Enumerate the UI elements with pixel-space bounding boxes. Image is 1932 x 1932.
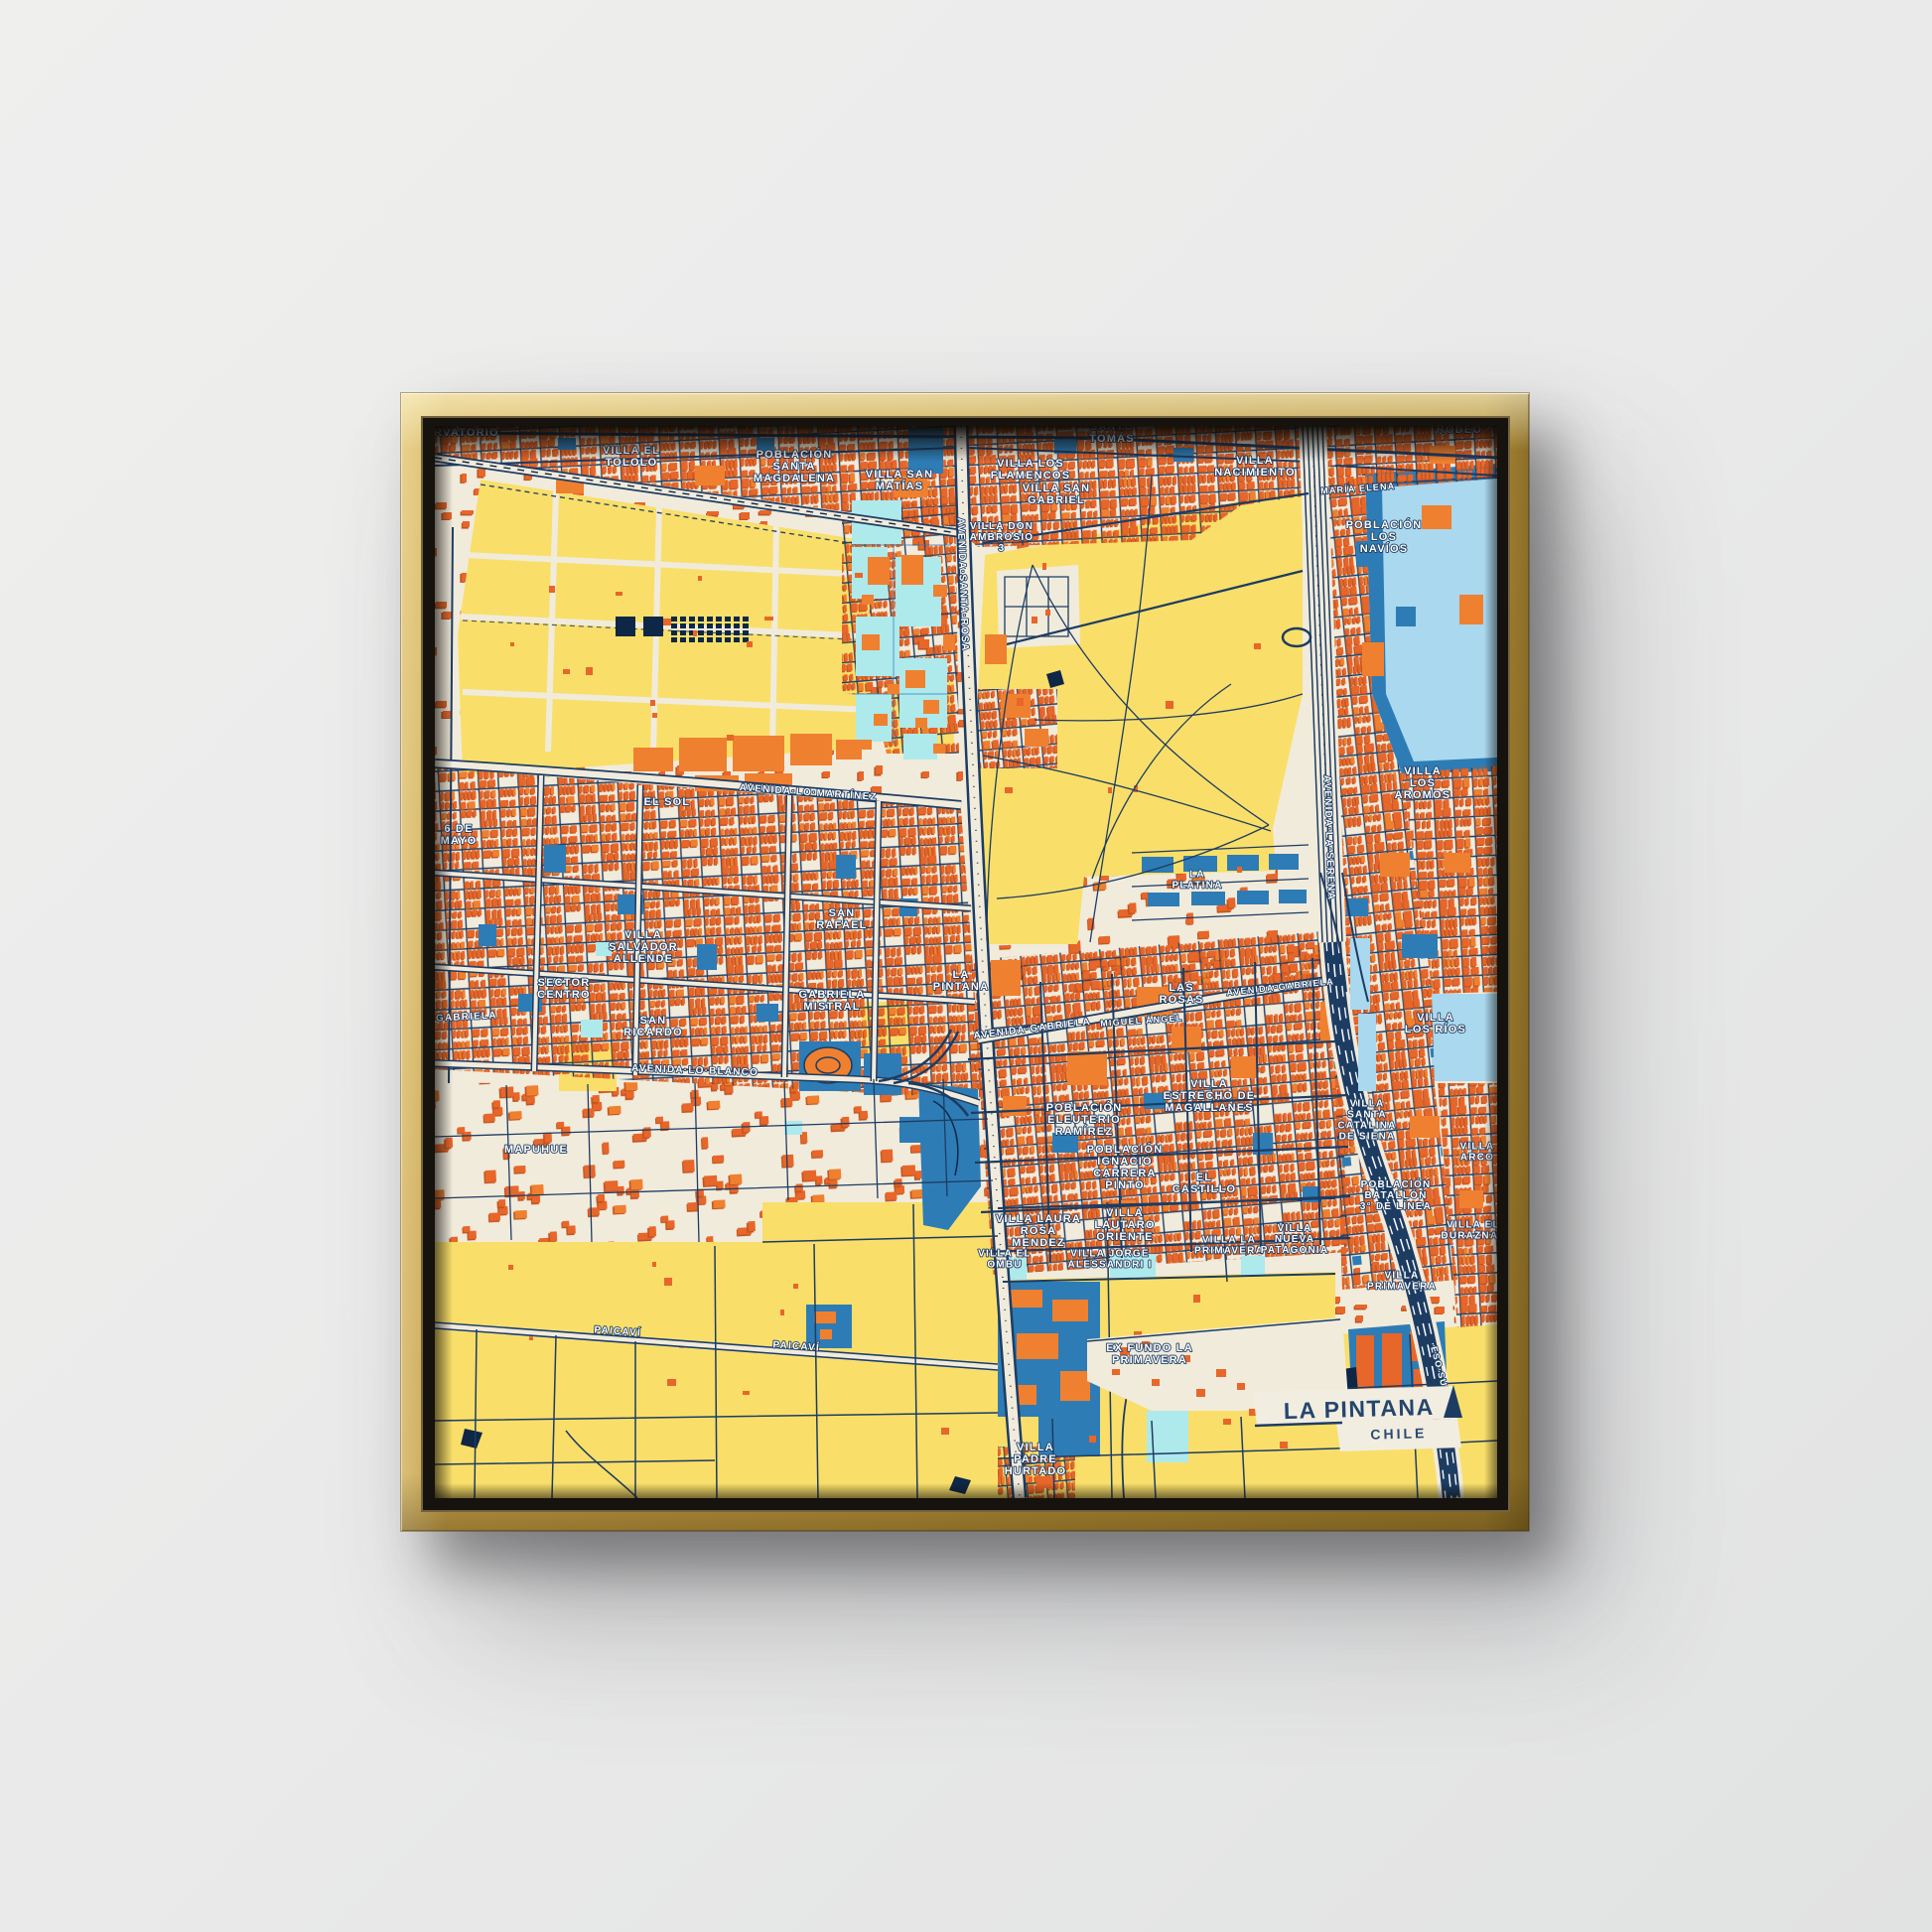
svg-text:VILLASALVADORALLENDE: VILLASALVADORALLENDE: [609, 929, 678, 965]
svg-text:PAICAVÍ: PAICAVÍ: [594, 1322, 641, 1338]
svg-text:VILLALOS RÍOS: VILLALOS RÍOS: [1405, 1012, 1466, 1035]
svg-text:VILLALAUTAROORIENTE: VILLALAUTAROORIENTE: [1094, 1207, 1155, 1243]
svg-text:EX FUNDO LAPRIMAVERA: EX FUNDO LAPRIMAVERA: [1106, 1342, 1193, 1366]
svg-text:VILLAESTRECHO DEMAGALLANES: VILLAESTRECHO DEMAGALLANES: [1164, 1078, 1256, 1114]
svg-text:SANRICARDO: SANRICARDO: [623, 1015, 683, 1038]
svg-text:VILLAPADREHURTADO: VILLAPADREHURTADO: [1005, 1442, 1067, 1477]
svg-text:VILLA LOSFLAMENCOS: VILLA LOSFLAMENCOS: [991, 458, 1070, 482]
svg-text:LA PINTANA: LA PINTANA: [1284, 1394, 1435, 1424]
svg-text:RODEO: RODEO: [1437, 426, 1482, 436]
svg-text:POBLACIÓNELEUTERIORAMÍREZ: POBLACIÓNELEUTERIORAMÍREZ: [1046, 1101, 1123, 1138]
svg-text:MIGUEL ÁNGEL: MIGUEL ÁNGEL: [1100, 1013, 1183, 1029]
svg-text:VILLA LAURAROSAMENDEZ: VILLA LAURAROSAMENDEZ: [996, 1213, 1081, 1249]
svg-text:VILLA SANGABRIEL: VILLA SANGABRIEL: [1023, 483, 1090, 506]
svg-text:VILLA LAPRIMAVERA: VILLA LAPRIMAVERA: [1194, 1235, 1264, 1257]
svg-text:VILLASANTACATALINADE SIENA: VILLASANTACATALINADE SIENA: [1337, 1099, 1396, 1143]
svg-text:AVENIDA·GABRIELA: AVENIDA·GABRIELA: [973, 1017, 1091, 1041]
svg-text:ELCASTILLO: ELCASTILLO: [1173, 1172, 1237, 1195]
svg-text:VILLANUEVAPATAGONIA: VILLANUEVAPATAGONIA: [1261, 1223, 1329, 1256]
svg-text:6 DEMAYO: 6 DEMAYO: [441, 823, 478, 847]
svg-text:VILLA ELOMBU: VILLA ELOMBU: [978, 1249, 1032, 1271]
svg-text:POBLACIÓNLOSNAVÍOS: POBLACIÓNLOSNAVÍOS: [1346, 518, 1423, 555]
svg-text:POBLACIÓNBATALLÓN3° DE LÍNEA: POBLACIÓNBATALLÓN3° DE LÍNEA: [1360, 1177, 1432, 1212]
svg-text:PAICAVÍ: PAICAVÍ: [772, 1337, 820, 1353]
svg-text:VILLA DONAMBROSIO3: VILLA DONAMBROSIO3: [970, 521, 1035, 554]
svg-text:VILLA ELTOLOLO: VILLA ELTOLOLO: [603, 445, 660, 469]
svg-text:MAPUHUE: MAPUHUE: [504, 1144, 568, 1156]
svg-text:GABRIELA: GABRIELA: [436, 1010, 497, 1024]
svg-text:LASROSAS: LASROSAS: [1159, 982, 1203, 1006]
svg-text:POBLACIÓNSANTAMAGDALENA: POBLACIÓNSANTAMAGDALENA: [754, 448, 835, 484]
svg-text:VILLAARCO: VILLAARCO: [1460, 1142, 1495, 1164]
svg-text:RVATORIO: RVATORIO: [435, 427, 499, 439]
svg-text:AVENIDA·GABRIELA: AVENIDA·GABRIELA: [1226, 976, 1334, 997]
svg-text:LAPINTANA: LAPINTANA: [933, 969, 989, 993]
svg-text:VILLA SANMATÍAS: VILLA SANMATÍAS: [866, 469, 933, 492]
svg-text:MARÍA ELENA: MARÍA ELENA: [1320, 481, 1396, 495]
svg-text:AVENIDA·SANTA·ROSA: AVENIDA·SANTA·ROSA: [955, 517, 971, 651]
svg-text:VILLA JORGEALESSANDRI I: VILLA JORGEALESSANDRI I: [1068, 1249, 1153, 1271]
svg-text:CHILE: CHILE: [1370, 1425, 1427, 1443]
svg-text:POBLACIÓNIGNACIOCARRERAPINTO: POBLACIÓNIGNACIOCARRERAPINTO: [1087, 1143, 1164, 1191]
svg-text:·ESO·SUR: ·ESO·SUR: [1428, 1341, 1451, 1395]
svg-text:EL SOL: EL SOL: [644, 796, 691, 808]
svg-text:SANRAFAEL: SANRAFAEL: [816, 907, 867, 931]
svg-text:SANTOTOMÁS: SANTOTOMÁS: [1089, 426, 1135, 445]
svg-text:AVENIDA·LA·SERENA: AVENIDA·LA·SERENA: [1321, 775, 1336, 901]
svg-text:GABRIELAMISTRAL: GABRIELAMISTRAL: [798, 989, 865, 1013]
svg-text:VILLAPRIMAVERA: VILLAPRIMAVERA: [1367, 1271, 1437, 1293]
svg-text:AVENIDA·LO·BLANCO: AVENIDA·LO·BLANCO: [631, 1063, 759, 1078]
svg-text:AVENIDA·LO·MARTÍNEZ: AVENIDA·LO·MARTÍNEZ: [739, 780, 878, 803]
svg-text:LAPLATINA: LAPLATINA: [1173, 870, 1223, 892]
svg-text:SECTORCENTRO: SECTORCENTRO: [537, 977, 591, 1001]
svg-text:VILLALOSAROMOS: VILLALOSAROMOS: [1395, 765, 1451, 801]
svg-text:VILLANACIMIENTO: VILLANACIMIENTO: [1214, 455, 1295, 479]
svg-text:VILLA ELDURAZNAL: VILLA ELDURAZNAL: [1441, 1220, 1497, 1242]
